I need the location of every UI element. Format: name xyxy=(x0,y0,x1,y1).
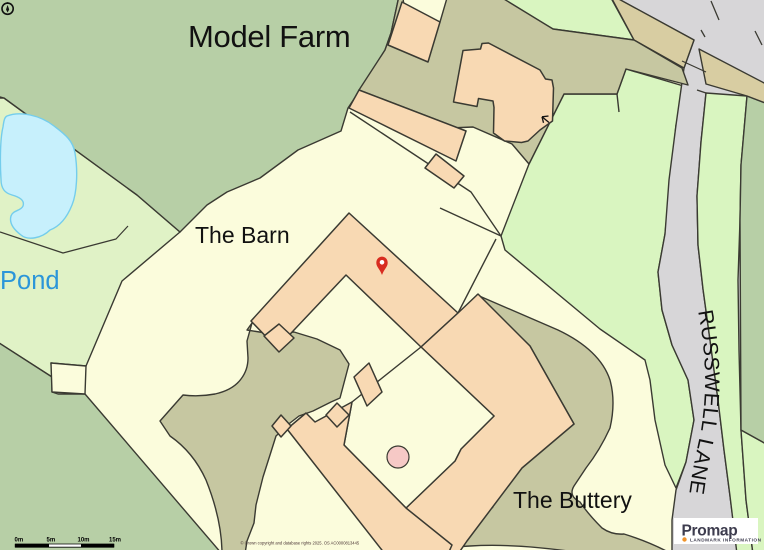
svg-text:0m: 0m xyxy=(15,538,24,544)
svg-text:15m: 15m xyxy=(109,538,121,544)
svg-text:© Crown copyright and database: © Crown copyright and database rights 20… xyxy=(241,540,360,545)
svg-text:5m: 5m xyxy=(47,538,56,544)
svg-text:Model Farm: Model Farm xyxy=(188,19,350,54)
svg-text:Pond: Pond xyxy=(0,267,60,295)
svg-text:LANDMARK INFORMATION: LANDMARK INFORMATION xyxy=(690,538,762,543)
svg-text:The Buttery: The Buttery xyxy=(513,487,632,513)
svg-text:The Barn: The Barn xyxy=(195,222,290,248)
svg-text:10m: 10m xyxy=(78,538,90,544)
